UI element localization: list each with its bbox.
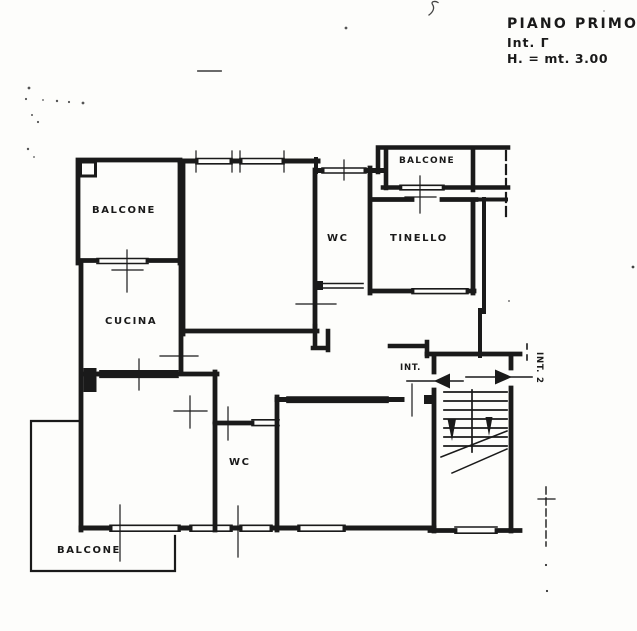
room-label-cucina: CUCINA xyxy=(105,316,157,327)
room-label-balcone-top-left: BALCONE xyxy=(92,205,156,216)
ticks xyxy=(112,151,436,561)
stair-direction-arrow-up xyxy=(486,417,493,436)
room-label-balcone-top-right: BALCONE xyxy=(399,156,455,166)
scan-noise xyxy=(25,1,634,592)
room-label-tinello: TINELLO xyxy=(390,233,448,244)
title-block: PIANO PRIMO Int. Γ H. = mt. 3.00 xyxy=(507,16,637,67)
interno-number: Int. Γ xyxy=(507,35,637,51)
entrance-arrow-right xyxy=(495,370,512,385)
room-label-balcone-bottom: BALCONE xyxy=(57,545,121,556)
ceiling-height: H. = mt. 3.00 xyxy=(507,51,637,67)
windows xyxy=(97,159,497,534)
floorplan-sheet: PIANO PRIMO Int. Γ H. = mt. 3.00 BALCONE… xyxy=(0,0,637,631)
stairs xyxy=(441,390,507,473)
room-label-wc-top: WC xyxy=(327,233,349,244)
room-label-wc-bottom: WC xyxy=(229,457,251,468)
entrance-label-int: INT. xyxy=(400,363,421,373)
entrance-label-int-2: INT. 2 xyxy=(534,352,544,384)
entrance-arrow-left xyxy=(434,374,450,389)
floor-title: PIANO PRIMO xyxy=(507,16,637,34)
floor-plan-drawing xyxy=(0,0,637,631)
